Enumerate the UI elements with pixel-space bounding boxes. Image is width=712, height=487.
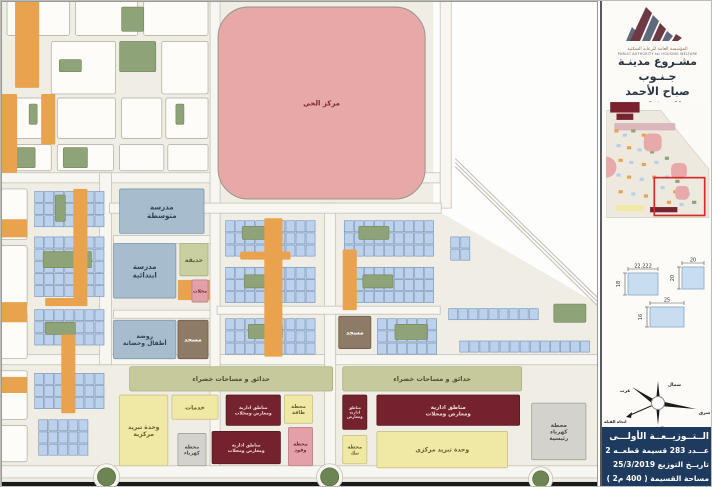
info-panel: المؤسسة العامة للرعاية السكنية PUBLIC AU… [600,1,712,487]
svg-text:مناطق اداريةومعارض ومحلات: مناطق اداريةومعارض ومحلات [228,443,265,453]
roundabout [529,467,553,487]
svg-text:مدرسةمتوسطة: مدرسةمتوسطة [147,202,177,219]
plot-cluster [39,420,88,455]
city-map-svg: مدرسةمتوسطةمدرسةابتدائيةحديقةمحلاتروضةأط… [1,1,598,487]
pahw-logo: المؤسسة العامة للرعاية السكنية PUBLIC AU… [602,3,712,57]
compass-west-label: غرب [620,389,630,394]
roundabout [317,464,343,487]
pahw-logo-mark [616,3,700,43]
plot-cluster [449,309,538,320]
east-spoke-icon [660,401,696,409]
plot-cluster [451,237,470,260]
qibla-arrowhead-icon [626,412,632,418]
plot-cluster [460,341,590,352]
svg-text:محطةوقود: محطةوقود [293,441,308,453]
plot-c-width-label: 25 [664,298,670,304]
compass-rose: شمال جنوب شرق غرب اتجاه القبلة [602,379,712,429]
master-plan-map: مدرسةمتوسطةمدرسةابتدائيةحديقةمحلاتروضةأط… [1,1,598,487]
plot-area-line: مساحة القسيمة ( 400 م2 ) [604,472,709,486]
plot-type-c: 25 16 [636,297,690,337]
plot-cluster [35,191,104,226]
plot-count-line: عـــدد 283 قسيمة قطعــه 2 [604,444,709,458]
plot-type-b: 20 20 [668,257,710,299]
plot-dimension-legend: 22.222 18 20 20 [602,251,712,337]
roundabout [93,464,119,487]
key-map-svg [606,102,711,226]
svg-text:مسجد: مسجد [346,330,364,337]
distribution-info-box: الــتــوزيــعــة الأولـــى عـــدد 283 قس… [602,427,712,487]
plot-b-height-label: 20 [670,275,676,281]
plot-a-width-label: 22.222 [634,264,652,270]
compass-east-label: شرق [699,411,711,416]
svg-text:مدرسةابتدائية: مدرسةابتدائية [133,262,157,279]
svg-text:خدمات: خدمات [185,404,205,411]
location-key-map [606,102,711,228]
svg-text:مناطق اداريةومعارض ومحلات: مناطق اداريةومعارض ومحلات [426,405,472,418]
plot-b-width-label: 20 [690,258,696,264]
compass-qibla-label: اتجاه القبلة [604,419,627,424]
compass-center [652,397,665,410]
project-title-line1: مشـروع مدينـة جـنـوب [602,54,712,84]
svg-text:مناطق اداريةومعارض ومحلات: مناطق اداريةومعارض ومحلات [235,406,272,416]
plot-a-height-label: 18 [616,281,622,287]
plan-document: مدرسةمتوسطةمدرسةابتدائيةحديقةمحلاتروضةأط… [0,0,712,487]
svg-text:محطةطاقة: محطةطاقة [291,404,306,416]
svg-text:محطةكهرباء: محطةكهرباء [184,444,200,456]
svg-text:وحدة تبريد مركزي: وحدة تبريد مركزي [415,447,469,454]
svg-text:حديقة: حديقة [185,257,203,264]
svg-text:حدائق و مساحات خضراء: حدائق و مساحات خضراء [192,375,270,383]
svg-text:مركز الحي: مركز الحي [303,99,340,108]
svg-text:مسجد: مسجد [184,337,202,344]
compass-north-label: شمال [668,383,682,388]
svg-text:حدائق و مساحات خضراء: حدائق و مساحات خضراء [393,375,471,383]
plot-c-height-label: 16 [638,314,644,320]
distribution-title: الــتــوزيــعــة الأولـــى [604,430,709,444]
distribution-date-line: تاريــخ التوزيع 25/3/2019 [604,458,709,472]
svg-text:محطةكهرباءرئيسية: محطةكهرباءرئيسية [549,423,568,442]
svg-text:محلات: محلات [193,290,207,295]
